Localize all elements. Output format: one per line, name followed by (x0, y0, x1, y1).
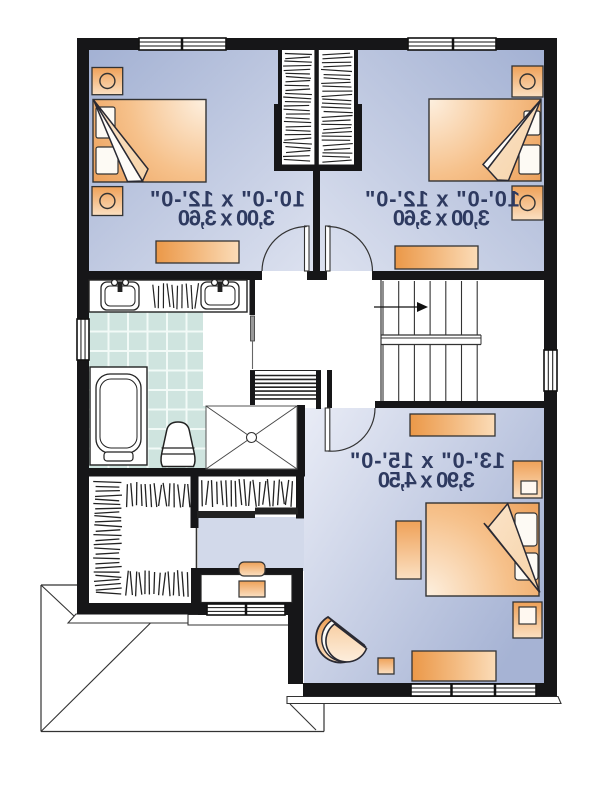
svg-text:3,00 x 3,60: 3,00 x 3,60 (393, 206, 490, 231)
svg-text:3,90 x 4,50: 3,90 x 4,50 (378, 468, 475, 493)
svg-text:3,00 x 3,60: 3,00 x 3,60 (178, 206, 275, 231)
